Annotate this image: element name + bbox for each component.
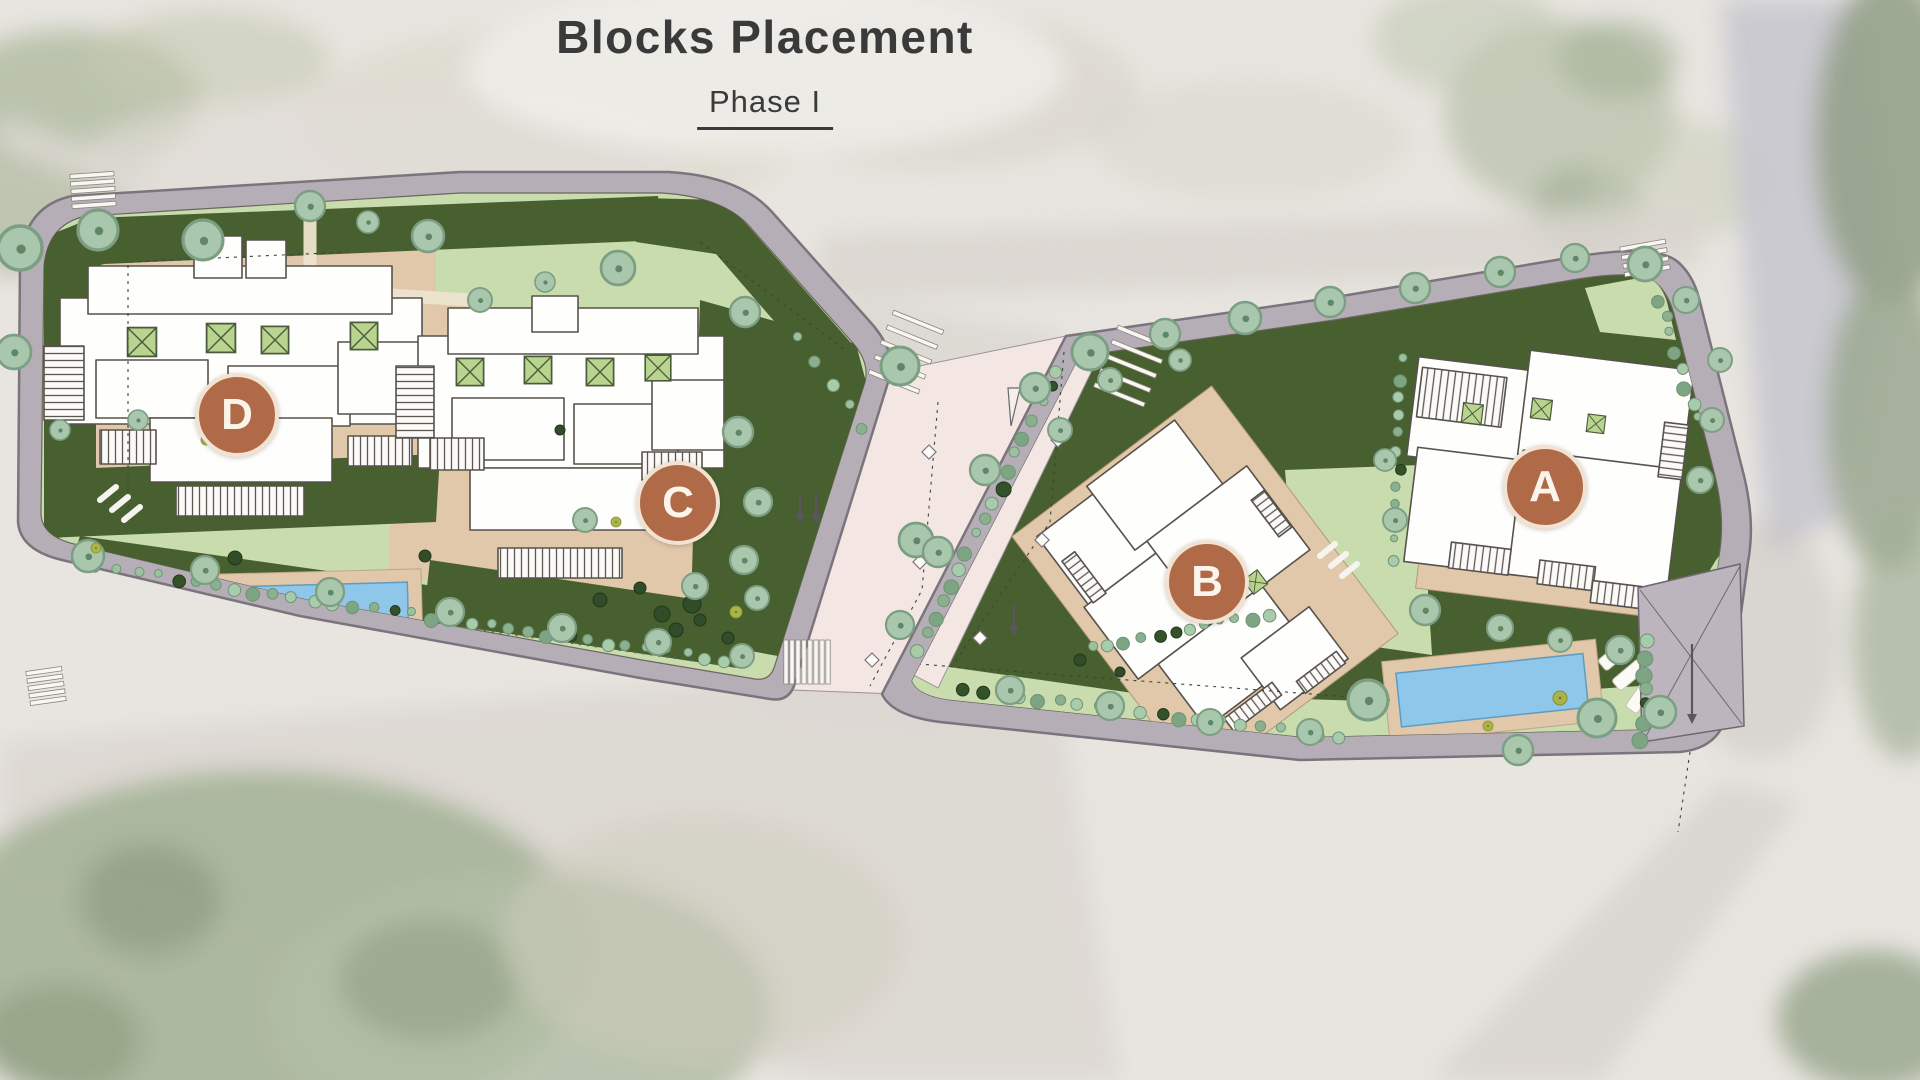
shrub-icon (1117, 637, 1130, 650)
tree-icon (1708, 348, 1732, 372)
dark-shrub-icon (722, 632, 734, 644)
tree-icon (1072, 334, 1108, 370)
shrub-icon (938, 595, 950, 607)
shrub-icon (583, 634, 593, 644)
tree-icon (1673, 287, 1699, 313)
tree-icon (1410, 595, 1440, 625)
tree-icon (601, 251, 635, 285)
shrub-icon (369, 602, 379, 612)
tree-icon (723, 417, 753, 447)
shrub-icon (1640, 634, 1654, 648)
shrub-icon (996, 482, 1011, 497)
shrub-icon (1055, 695, 1065, 705)
shrub-icon (267, 589, 278, 600)
plan-header: Blocks Placement Phase I (556, 10, 974, 130)
olive-tree-icon (1553, 691, 1567, 705)
shrub-icon (1677, 363, 1688, 374)
shrub-icon (1391, 535, 1398, 542)
shrub-icon (1015, 432, 1029, 446)
shrub-icon (112, 564, 121, 573)
tree-icon (645, 629, 671, 655)
shrub-icon (1071, 698, 1083, 710)
tree-icon (50, 420, 70, 440)
dark-shrub-icon (419, 550, 431, 562)
shrub-icon (466, 618, 478, 630)
olive-tree-icon (91, 543, 101, 553)
tree-icon (1297, 719, 1323, 745)
shrub-icon (228, 584, 241, 597)
shrub-icon (1640, 682, 1653, 695)
tree-icon (1700, 408, 1724, 432)
dark-shrub-icon (634, 582, 646, 594)
shrub-icon (346, 601, 359, 614)
olive-tree-icon (611, 517, 621, 527)
dark-shrub-icon (1074, 654, 1086, 666)
shrub-icon (1652, 295, 1665, 308)
tree-icon (730, 546, 758, 574)
shrub-icon (1101, 640, 1113, 652)
block-badge-d[interactable]: D (195, 373, 279, 457)
tree-icon (1348, 680, 1388, 720)
shrub-icon (1234, 719, 1246, 731)
tree-icon (881, 347, 919, 385)
dark-shrub-icon (593, 593, 607, 607)
tree-icon (1096, 692, 1124, 720)
shrub-icon (1394, 375, 1407, 388)
block-badge-a[interactable]: A (1503, 445, 1587, 529)
shrub-icon (1255, 721, 1265, 731)
tree-icon (0, 335, 31, 369)
shrub-icon (856, 423, 867, 434)
tree-icon (996, 676, 1024, 704)
tree-icon (730, 297, 760, 327)
shrub-icon (503, 623, 514, 634)
tree-icon (1561, 244, 1589, 272)
shrub-icon (929, 612, 943, 626)
shrub-icon (1393, 427, 1402, 436)
tree-icon (1020, 373, 1050, 403)
tree-icon (744, 488, 772, 516)
tree-icon (535, 272, 555, 292)
tree-icon (682, 573, 708, 599)
tree-icon (1197, 709, 1223, 735)
tree-icon (548, 614, 576, 642)
tree-icon (436, 598, 464, 626)
site-plan: Blocks Placement Phase I D C B A (0, 0, 1920, 1080)
shrub-icon (977, 686, 990, 699)
tree-icon (1400, 273, 1430, 303)
site-plan-canvas (0, 0, 1920, 1080)
shrub-icon (173, 575, 186, 588)
shrub-icon (407, 607, 415, 615)
shrub-icon (809, 356, 820, 367)
shrub-icon (972, 528, 981, 537)
shrub-icon (1637, 651, 1653, 667)
shrub-icon (602, 639, 615, 652)
shrub-icon (246, 587, 260, 601)
olive-tree-icon (1483, 721, 1493, 731)
tree-icon (730, 644, 754, 668)
shrub-icon (1393, 410, 1403, 420)
tree-icon (573, 508, 597, 532)
dark-shrub-icon (694, 614, 706, 626)
tree-icon (0, 226, 42, 270)
tree-icon (970, 455, 1000, 485)
tree-icon (1374, 449, 1396, 471)
shrub-icon (1026, 415, 1038, 427)
shrub-icon (1393, 392, 1404, 403)
shrub-icon (1396, 465, 1407, 476)
tree-icon (412, 220, 444, 252)
dark-shrub-icon (228, 551, 242, 565)
shrub-icon (1049, 366, 1061, 378)
dark-shrub-icon (555, 425, 565, 435)
tree-icon (886, 611, 914, 639)
shrub-icon (846, 400, 855, 409)
tree-icon (316, 578, 344, 606)
tree-icon (1383, 508, 1407, 532)
shrub-icon (1665, 327, 1673, 335)
tree-icon (1098, 368, 1122, 392)
tree-icon (1487, 615, 1513, 641)
shrub-icon (1030, 695, 1044, 709)
olive-tree-icon (730, 606, 742, 618)
shrub-icon (390, 606, 400, 616)
shrub-icon (1632, 733, 1648, 749)
tree-icon (468, 288, 492, 312)
dark-shrub-icon (1115, 667, 1125, 677)
shrub-icon (684, 648, 692, 656)
shrub-icon (979, 513, 990, 524)
shrub-icon (698, 653, 710, 665)
tree-icon (1644, 696, 1676, 728)
block-badge-c[interactable]: C (636, 461, 720, 545)
tree-icon (78, 210, 118, 250)
shrub-icon (1136, 633, 1146, 643)
shrub-icon (1155, 631, 1167, 643)
shrub-icon (1158, 709, 1169, 720)
shrub-icon (1668, 347, 1681, 360)
page-title: Blocks Placement (556, 10, 974, 64)
shrub-icon (1276, 723, 1285, 732)
tree-icon (128, 410, 148, 430)
shrub-icon (1171, 627, 1182, 638)
dark-shrub-icon (669, 623, 683, 637)
shrub-icon (1399, 354, 1407, 362)
shrub-icon (1009, 447, 1019, 457)
shrub-icon (1089, 642, 1098, 651)
tree-icon (295, 191, 325, 221)
shrub-icon (1184, 624, 1195, 635)
shrub-icon (1001, 465, 1015, 479)
shrub-icon (1172, 713, 1186, 727)
shrub-icon (1688, 398, 1701, 411)
shrub-icon (1391, 499, 1400, 508)
shrub-icon (718, 656, 730, 668)
shrub-icon (944, 580, 959, 595)
tree-icon (1606, 636, 1634, 664)
phase-label: Phase I (697, 84, 833, 130)
shrub-icon (923, 627, 934, 638)
shrub-icon (910, 645, 923, 658)
tree-icon (1503, 735, 1533, 765)
shrub-icon (620, 641, 630, 651)
shrub-icon (952, 563, 966, 577)
tree-icon (745, 586, 769, 610)
shrub-icon (1391, 482, 1400, 491)
tree-icon (1229, 302, 1261, 334)
shrub-icon (135, 567, 144, 576)
tree-icon (1150, 319, 1180, 349)
shrub-icon (793, 332, 801, 340)
tree-icon (1169, 349, 1191, 371)
tree-icon (1628, 247, 1662, 281)
shrub-icon (1636, 668, 1652, 684)
shrub-icon (1246, 613, 1260, 627)
dark-shrub-icon (654, 606, 670, 622)
shrub-icon (1388, 556, 1399, 567)
tree-icon (191, 556, 219, 584)
shrub-icon (957, 547, 971, 561)
shrub-icon (985, 497, 998, 510)
tree-icon (923, 537, 953, 567)
shrub-icon (285, 592, 296, 603)
shrub-icon (155, 570, 163, 578)
tree-icon (1578, 699, 1616, 737)
tree-icon (1485, 257, 1515, 287)
tree-icon (1315, 287, 1345, 317)
shrub-icon (1263, 609, 1276, 622)
tree-icon (357, 211, 379, 233)
block-badge-b[interactable]: B (1165, 540, 1249, 624)
shrub-icon (1677, 382, 1691, 396)
shrub-icon (827, 379, 839, 391)
shrub-icon (956, 683, 969, 696)
shrub-icon (488, 619, 497, 628)
shrub-icon (1134, 707, 1146, 719)
shrub-icon (1662, 311, 1672, 321)
tree-icon (1687, 467, 1713, 493)
shrub-icon (523, 626, 534, 637)
tree-icon (1048, 418, 1072, 442)
tree-icon (183, 220, 223, 260)
tree-icon (1548, 628, 1572, 652)
shrub-icon (1333, 732, 1345, 744)
